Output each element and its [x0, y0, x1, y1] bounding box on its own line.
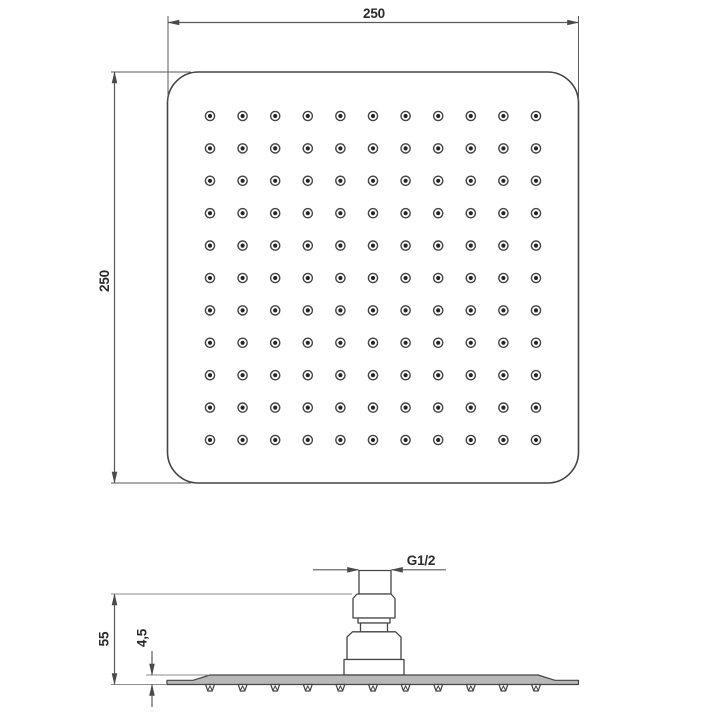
nozzle-dot — [306, 406, 310, 410]
nozzle-dot — [306, 114, 310, 118]
nozzle-dot — [273, 308, 277, 312]
nozzle-dot — [436, 276, 440, 280]
nozzle-dot — [371, 179, 375, 183]
nozzle-dot — [534, 373, 538, 377]
nozzle-dot — [306, 308, 310, 312]
nozzle-dot — [273, 114, 277, 118]
nozzle-dot — [241, 341, 245, 345]
neck-ring-lower — [361, 623, 388, 632]
nozzle-dot — [534, 211, 538, 215]
top-view: 250 250 — [97, 6, 579, 483]
shower-head-technical-drawing: 250 250 — [0, 0, 720, 720]
side-nozzle-row — [206, 685, 541, 692]
nozzle-dot — [338, 341, 342, 345]
nozzle-dot — [371, 276, 375, 280]
nozzle-dot — [404, 406, 408, 410]
nozzle-dot — [338, 406, 342, 410]
nozzle-dot — [273, 211, 277, 215]
nozzle-dot — [534, 438, 538, 442]
nozzle-dot — [534, 146, 538, 150]
nozzle-dot — [241, 276, 245, 280]
nozzle-dot — [273, 438, 277, 442]
nozzle-dot — [404, 373, 408, 377]
nozzle-dot — [469, 341, 473, 345]
lower-body — [347, 632, 401, 660]
side-view: 55 4,5 G1/2 — [97, 553, 579, 707]
nozzle-dot — [371, 373, 375, 377]
nozzle-dot — [306, 373, 310, 377]
nozzle-dot — [371, 244, 375, 248]
nozzle-dot — [338, 211, 342, 215]
nozzle-dot — [338, 308, 342, 312]
nozzle-dot — [469, 373, 473, 377]
nozzle-dot — [469, 276, 473, 280]
nozzle-dot — [273, 341, 277, 345]
nozzle-dot — [371, 146, 375, 150]
nozzle-dot — [501, 406, 505, 410]
nozzle-dot — [436, 341, 440, 345]
nozzle-dot — [208, 341, 212, 345]
nozzle-dot — [338, 114, 342, 118]
nozzle-dot — [436, 179, 440, 183]
width-dimension-label: 250 — [363, 6, 385, 21]
nozzle-dot — [241, 308, 245, 312]
nozzle-dot — [436, 146, 440, 150]
nozzle-dot — [534, 308, 538, 312]
nozzle-dot — [371, 341, 375, 345]
nozzle-dot — [338, 179, 342, 183]
nozzle-dot — [338, 244, 342, 248]
nozzle-dot — [273, 244, 277, 248]
nozzle-dot — [404, 244, 408, 248]
nozzle-dot — [436, 114, 440, 118]
neck-ring-upper — [358, 618, 390, 623]
nozzle-dot — [241, 438, 245, 442]
nozzle-dot — [306, 211, 310, 215]
nozzle-dot — [273, 179, 277, 183]
nozzle-dot — [534, 244, 538, 248]
nozzle-dot — [306, 276, 310, 280]
nozzle-dot — [501, 341, 505, 345]
nozzle-dot — [241, 146, 245, 150]
nozzle-dot — [208, 179, 212, 183]
height-55-label: 55 — [97, 631, 112, 646]
nozzle-dot — [208, 406, 212, 410]
nozzle-dot — [469, 211, 473, 215]
nozzle-dot — [469, 406, 473, 410]
thread-pipe — [359, 571, 391, 595]
nozzle-dot — [501, 114, 505, 118]
nozzle-dot — [404, 114, 408, 118]
nozzle-dot — [371, 308, 375, 312]
nozzle-dot — [404, 276, 408, 280]
nozzle-dot — [208, 373, 212, 377]
nozzle-dot — [371, 406, 375, 410]
base-flange — [344, 660, 404, 676]
nozzle-dot — [469, 114, 473, 118]
nozzle-dot — [501, 308, 505, 312]
nozzle-dot — [241, 211, 245, 215]
nozzle-dot — [273, 406, 277, 410]
nozzle-dot — [338, 373, 342, 377]
nozzle-dot — [469, 146, 473, 150]
nozzle-dot — [208, 244, 212, 248]
drawing-canvas: 250 250 — [0, 0, 720, 720]
nozzle-dot — [371, 211, 375, 215]
nozzle-dot — [306, 341, 310, 345]
nozzle-dot — [306, 146, 310, 150]
nozzle-dot — [501, 179, 505, 183]
thread-dimension: G1/2 — [313, 553, 446, 570]
nozzle-dot — [404, 341, 408, 345]
nozzle-dot — [208, 276, 212, 280]
height-dimension-label: 250 — [97, 270, 112, 292]
thickness-label: 4,5 — [135, 628, 150, 647]
thread-label: G1/2 — [407, 553, 435, 568]
nozzle-dot — [371, 438, 375, 442]
nozzle-dot — [469, 179, 473, 183]
nozzle-dot — [501, 276, 505, 280]
nozzle-dot — [436, 406, 440, 410]
nozzle-dot — [273, 373, 277, 377]
nozzle-dot — [208, 211, 212, 215]
nozzle-dot — [241, 406, 245, 410]
upper-body — [353, 594, 395, 618]
nozzle-dot — [436, 308, 440, 312]
nozzle-dot — [469, 308, 473, 312]
connector-assembly — [344, 571, 404, 676]
thickness-dimension: 4,5 — [135, 628, 210, 707]
plate-section — [167, 675, 579, 685]
nozzle-dot — [404, 146, 408, 150]
nozzle-dot — [208, 146, 212, 150]
nozzle-dot — [436, 244, 440, 248]
nozzle-dot — [404, 179, 408, 183]
nozzle-dot — [273, 146, 277, 150]
nozzle-dot — [534, 114, 538, 118]
nozzle-dot — [208, 114, 212, 118]
nozzle-dot — [208, 438, 212, 442]
nozzle-dot — [241, 179, 245, 183]
nozzle-dot — [306, 244, 310, 248]
nozzle-dot — [241, 373, 245, 377]
nozzle-dot — [534, 341, 538, 345]
nozzle-dot — [306, 438, 310, 442]
nozzle-dot — [501, 211, 505, 215]
nozzle-dot — [469, 438, 473, 442]
nozzle-dot — [501, 146, 505, 150]
nozzle-dot — [501, 438, 505, 442]
nozzle-dot — [436, 211, 440, 215]
nozzle-dot — [404, 438, 408, 442]
nozzle-dot — [273, 276, 277, 280]
nozzle-dot — [534, 276, 538, 280]
nozzle-dot — [404, 308, 408, 312]
nozzle-dot — [241, 114, 245, 118]
nozzle-dot — [436, 373, 440, 377]
nozzle-dot — [208, 308, 212, 312]
nozzle-dot — [501, 244, 505, 248]
nozzle-dot — [534, 406, 538, 410]
nozzle-dot — [404, 211, 408, 215]
nozzle-dot — [371, 114, 375, 118]
nozzle-dot — [469, 244, 473, 248]
nozzle-dot — [306, 179, 310, 183]
nozzle-dot — [241, 244, 245, 248]
nozzle-dot — [534, 179, 538, 183]
nozzle-dot — [338, 276, 342, 280]
nozzle-dot — [436, 438, 440, 442]
nozzle-dot — [338, 438, 342, 442]
nozzle-dot — [338, 146, 342, 150]
nozzle-dot — [501, 373, 505, 377]
